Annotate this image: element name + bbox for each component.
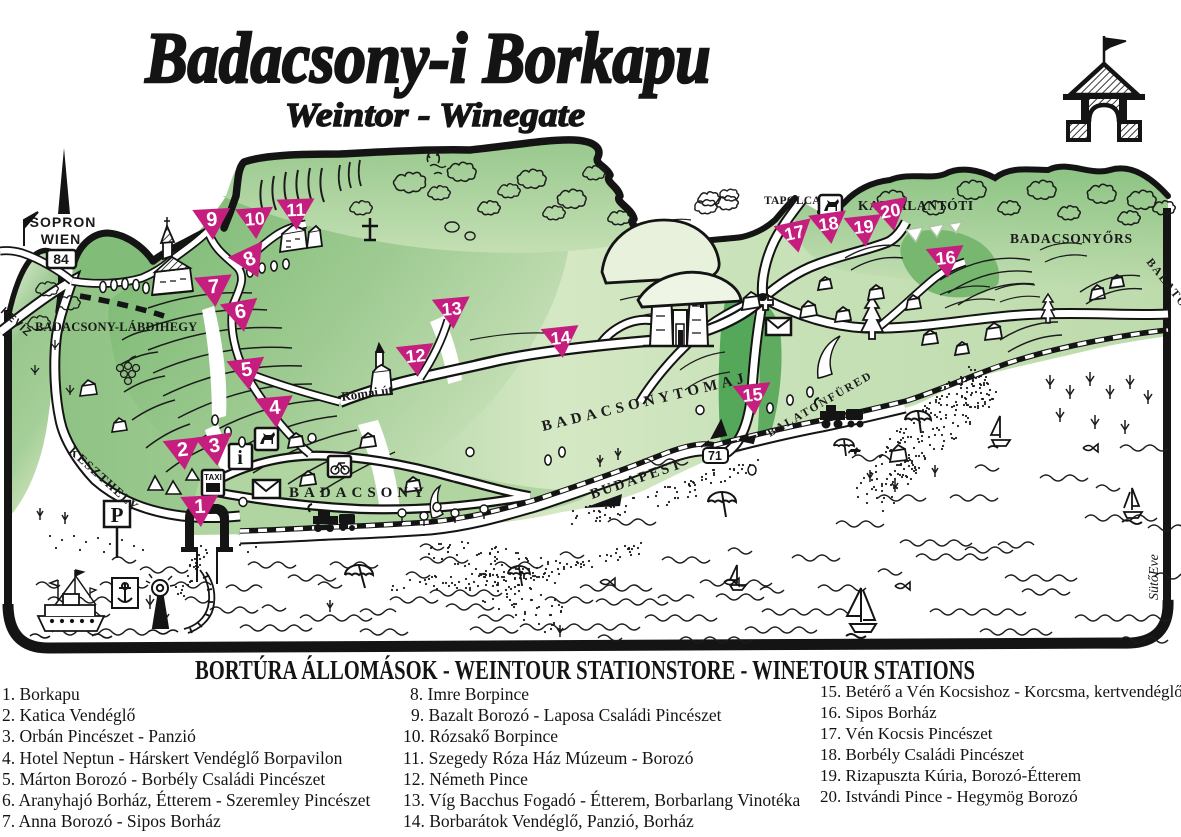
svg-text:4. Hotel Neptun - Hárskert Ven: 4. Hotel Neptun - Hárskert Vendéglő Borp… bbox=[2, 748, 343, 768]
svg-text:19: 19 bbox=[853, 216, 875, 238]
svg-text:i: i bbox=[237, 447, 243, 469]
svg-text:Weintor - Winegate: Weintor - Winegate bbox=[285, 97, 585, 134]
svg-text:1. Borkapu: 1. Borkapu bbox=[2, 684, 80, 704]
svg-text:7: 7 bbox=[207, 276, 220, 299]
svg-text:6. Aranyhajó Borház, Étterem -: 6. Aranyhajó Borház, Étterem - Szeremley… bbox=[2, 790, 370, 810]
svg-text:2. Katica Vendéglő: 2. Katica Vendéglő bbox=[2, 705, 136, 725]
svg-text:Badacsony-i Borkapu: Badacsony-i Borkapu bbox=[145, 18, 711, 98]
svg-text:17: 17 bbox=[783, 221, 807, 245]
svg-text:14: 14 bbox=[550, 327, 572, 349]
svg-text:TAPOLCA: TAPOLCA bbox=[764, 195, 821, 207]
svg-text:11. Szegedy Róza Ház Múzeum -: 11. Szegedy Róza Ház Múzeum - Borozó bbox=[403, 748, 694, 768]
svg-text:BORTÚRA ÁLLOMÁSOK - WEINTOUR S: BORTÚRA ÁLLOMÁSOK - WEINTOUR STATIONSTOR… bbox=[195, 655, 975, 685]
svg-text:10. Rózsakő Borpince: 10. Rózsakő Borpince bbox=[403, 726, 558, 746]
svg-text:9. Bazalt Borozó - Laposa Csal: 9. Bazalt Borozó - Laposa Családi Pincés… bbox=[411, 705, 722, 725]
svg-text:13: 13 bbox=[441, 298, 463, 320]
svg-text:11: 11 bbox=[286, 200, 306, 221]
svg-text:BADACSONY: BADACSONY bbox=[289, 485, 429, 501]
svg-text:BADACSONYŐRS: BADACSONYŐRS bbox=[1010, 231, 1133, 246]
svg-text:7. Anna Borozó - Sipos Borház: 7. Anna Borozó - Sipos Borház bbox=[2, 811, 221, 831]
svg-text:BADACSONY-LÁBDIHEGY: BADACSONY-LÁBDIHEGY bbox=[35, 320, 197, 334]
svg-text:9: 9 bbox=[206, 209, 218, 232]
svg-text:SOPRON: SOPRON bbox=[30, 214, 97, 230]
svg-text:SütőEve: SütőEve bbox=[1147, 554, 1162, 600]
svg-text:18. Borbély Családi Pincészet: 18. Borbély Családi Pincészet bbox=[820, 745, 1024, 764]
svg-text:TAXI: TAXI bbox=[204, 473, 222, 482]
svg-text:17. Vén Kocsis Pincészet: 17. Vén Kocsis Pincészet bbox=[820, 724, 993, 743]
svg-text:19. Rizapuszta Kúria, Borozó-É: 19. Rizapuszta Kúria, Borozó-Étterem bbox=[820, 766, 1081, 785]
svg-text:12: 12 bbox=[405, 345, 427, 367]
svg-text:84: 84 bbox=[53, 251, 69, 267]
svg-text:2: 2 bbox=[176, 438, 189, 461]
svg-text:15. Betérő a Vén Kocsishoz - K: 15. Betérő a Vén Kocsishoz - Korcsma, ke… bbox=[820, 682, 1181, 701]
svg-text:13. Víg Bacchus Fogadó - Étter: 13. Víg Bacchus Fogadó - Étterem, Borbar… bbox=[403, 790, 801, 810]
svg-text:15: 15 bbox=[742, 384, 764, 406]
svg-text:71: 71 bbox=[708, 449, 722, 463]
svg-text:20: 20 bbox=[879, 199, 902, 222]
svg-text:10: 10 bbox=[244, 208, 265, 229]
svg-text:5. Márton Borozó - Borbély Cs: 5. Márton Borozó - Borbély Családi Pincé… bbox=[2, 769, 325, 789]
svg-text:16. Sipos Borház: 16. Sipos Borház bbox=[820, 703, 937, 722]
svg-text:1: 1 bbox=[194, 496, 206, 519]
svg-text:20. Istvándi Pince - Hegymög B: 20. Istvándi Pince - Hegymög Borozó bbox=[820, 787, 1078, 806]
svg-text:WIEN: WIEN bbox=[41, 231, 82, 247]
svg-text:3. Orbán Pincészet - Panzió: 3. Orbán Pincészet - Panzió bbox=[2, 726, 196, 746]
svg-text:14. Borbarátok Vendéglő, Panzi: 14. Borbarátok Vendéglő, Panzió, Borház bbox=[403, 811, 694, 831]
svg-text:16: 16 bbox=[935, 247, 957, 269]
svg-text:P: P bbox=[111, 503, 124, 527]
svg-text:12. Németh Pince: 12. Németh Pince bbox=[403, 769, 528, 789]
svg-text:18: 18 bbox=[817, 213, 840, 236]
svg-text:8. Imre Borpince: 8. Imre Borpince bbox=[410, 684, 529, 704]
